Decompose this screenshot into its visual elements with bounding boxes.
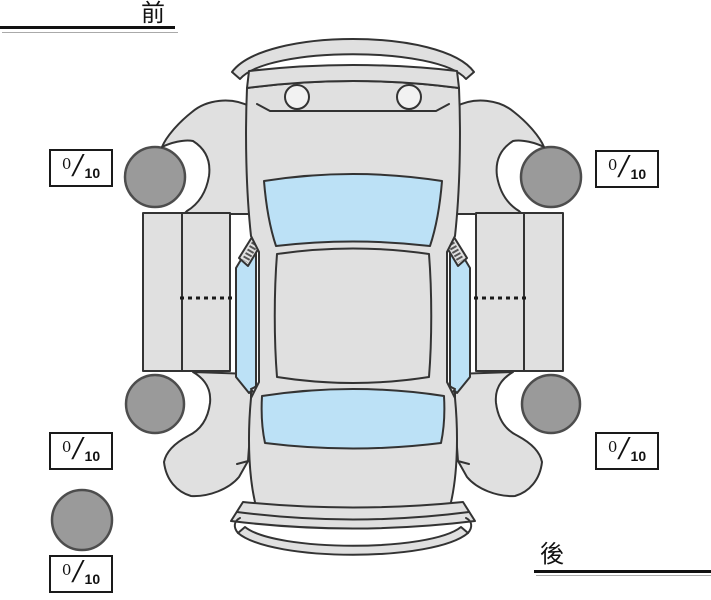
rating-box-front-right: 0 / 10 xyxy=(595,150,659,188)
rear-underline-shadow xyxy=(536,575,711,576)
left-headlight xyxy=(285,85,309,109)
front-left-tire xyxy=(125,147,185,207)
rear-window xyxy=(262,389,445,449)
door-panel xyxy=(143,213,230,371)
rating-value: 0 xyxy=(62,438,72,456)
rear-label: 後 xyxy=(540,543,564,567)
door-panel xyxy=(476,213,563,371)
tire-condition-diagram: 前 後 0 / 10 0 / 10 0 / 10 0 / 10 0 / 10 xyxy=(0,0,711,600)
rating-max: 10 xyxy=(631,166,647,182)
rating-separator: / xyxy=(619,156,628,179)
rating-value: 0 xyxy=(62,561,72,579)
rating-separator: / xyxy=(73,561,82,584)
roof xyxy=(275,249,432,384)
right-headlight xyxy=(397,85,421,109)
rear-left-tire xyxy=(126,375,184,433)
car-top-view-diagram xyxy=(0,0,711,600)
rating-box-rear-right: 0 / 10 xyxy=(595,432,659,470)
rear-underline xyxy=(534,570,711,573)
front-underline xyxy=(0,26,175,29)
rating-max: 10 xyxy=(85,165,101,181)
rating-value: 0 xyxy=(62,155,72,173)
rating-separator: / xyxy=(73,438,82,461)
rating-max: 10 xyxy=(85,571,101,587)
front-right-tire xyxy=(521,147,581,207)
rating-box-spare: 0 / 10 xyxy=(49,555,113,593)
windshield xyxy=(264,174,442,246)
rating-box-front-left: 0 / 10 xyxy=(49,149,113,187)
front-underline-shadow xyxy=(2,32,178,33)
front-label: 前 xyxy=(141,2,165,26)
rating-max: 10 xyxy=(85,448,101,464)
spare-tire xyxy=(52,490,112,550)
rating-value: 0 xyxy=(608,156,618,174)
rear-bumper xyxy=(238,527,468,555)
rating-separator: / xyxy=(619,438,628,461)
rear-right-tire xyxy=(522,375,580,433)
rating-box-rear-left: 0 / 10 xyxy=(49,432,113,470)
rating-max: 10 xyxy=(631,448,647,464)
rating-separator: / xyxy=(73,155,82,178)
rating-value: 0 xyxy=(608,438,618,456)
